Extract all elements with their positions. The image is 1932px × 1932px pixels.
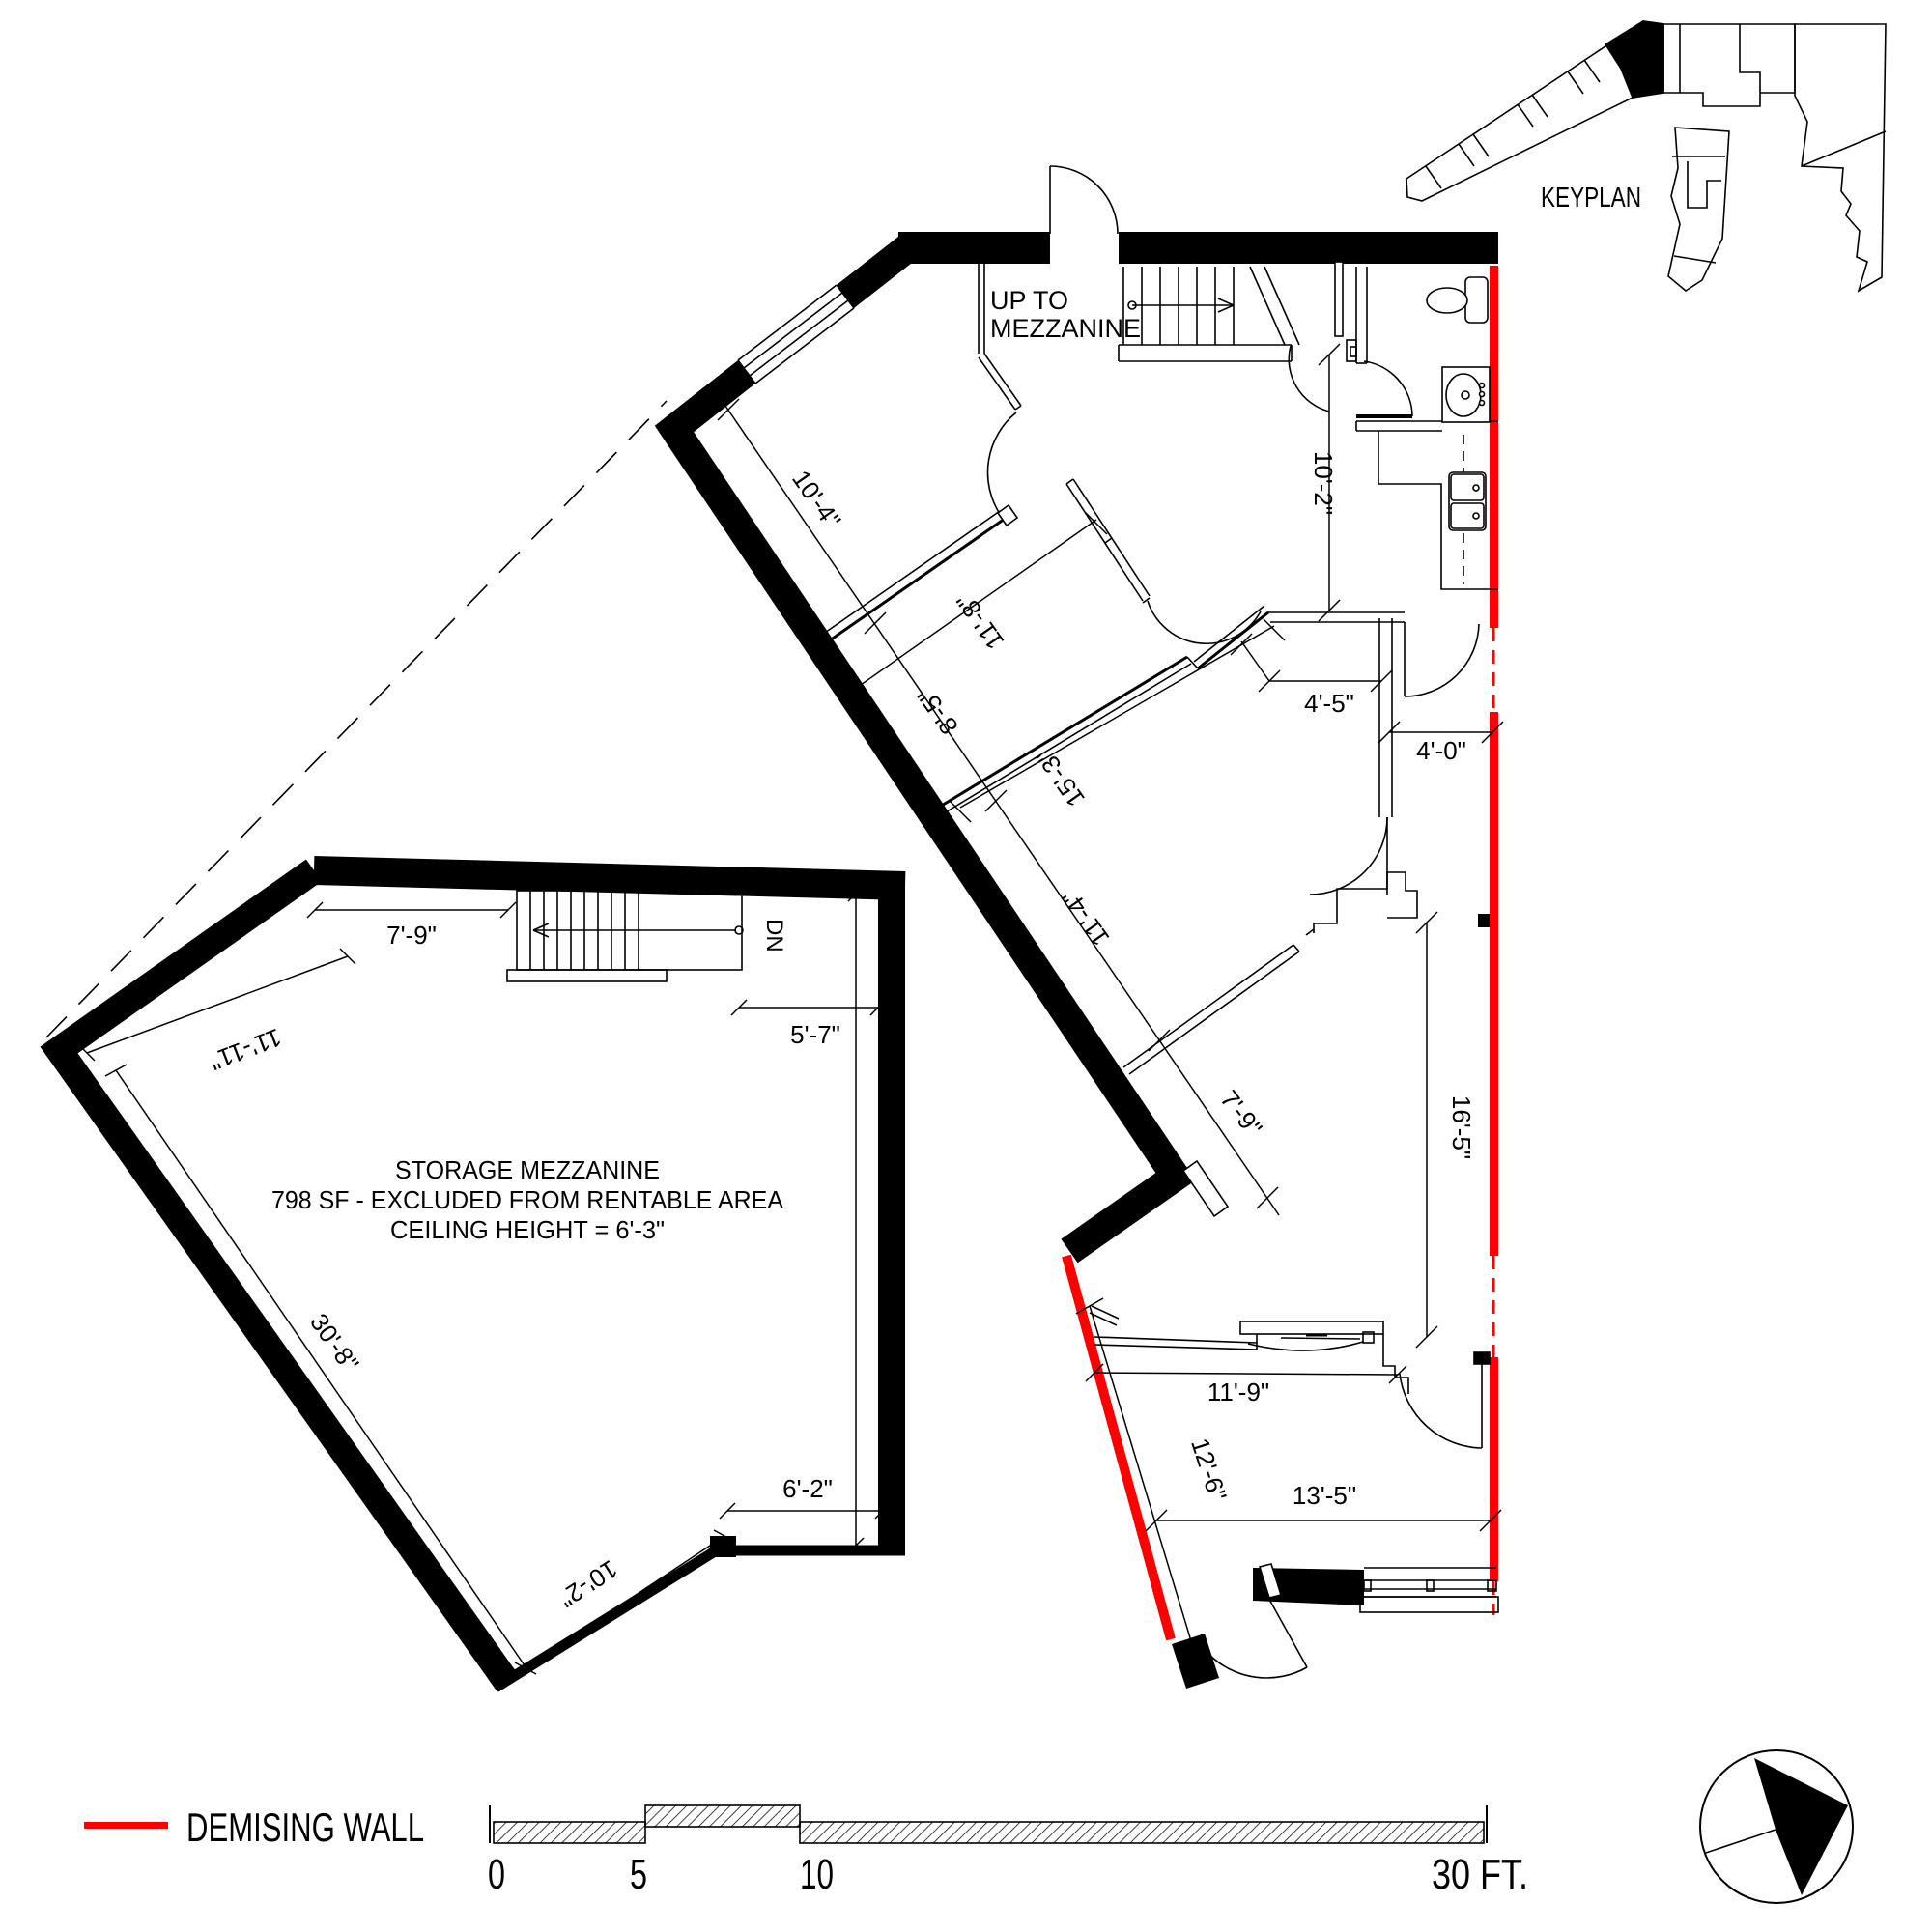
svg-text:6'-2": 6'-2" [782, 1474, 833, 1503]
svg-text:26'-5": 26'-5" [873, 1187, 902, 1251]
svg-text:CEILING HEIGHT = 6'-3": CEILING HEIGHT = 6'-3" [390, 1215, 665, 1244]
svg-text:4'-0": 4'-0" [1416, 736, 1466, 765]
svg-text:5: 5 [630, 1851, 647, 1898]
svg-text:4'-5": 4'-5" [1304, 689, 1354, 718]
svg-text:DEMISING WALL: DEMISING WALL [186, 1804, 424, 1850]
svg-text:STORAGE MEZZANINE: STORAGE MEZZANINE [395, 1155, 660, 1184]
svg-text:30 FT.: 30 FT. [1432, 1851, 1528, 1898]
svg-text:10'-2": 10'-2" [1309, 451, 1338, 515]
svg-text:DN: DN [761, 919, 787, 952]
svg-text:7'-9": 7'-9" [386, 921, 437, 950]
svg-text:MEZZANINE: MEZZANINE [990, 314, 1141, 343]
svg-text:11'-9": 11'-9" [1207, 1378, 1269, 1406]
svg-text:UP TO: UP TO [990, 286, 1068, 315]
svg-text:798 SF - EXCLUDED FROM RENTABL: 798 SF - EXCLUDED FROM RENTABLE AREA [271, 1185, 784, 1214]
svg-text:13'-5": 13'-5" [1293, 1481, 1356, 1510]
svg-text:16'-5": 16'-5" [1447, 1095, 1476, 1159]
svg-text:10: 10 [800, 1851, 834, 1898]
svg-text:5'-7": 5'-7" [790, 1020, 840, 1049]
svg-text:0: 0 [488, 1851, 505, 1898]
svg-text:KEYPLAN: KEYPLAN [1541, 183, 1641, 213]
